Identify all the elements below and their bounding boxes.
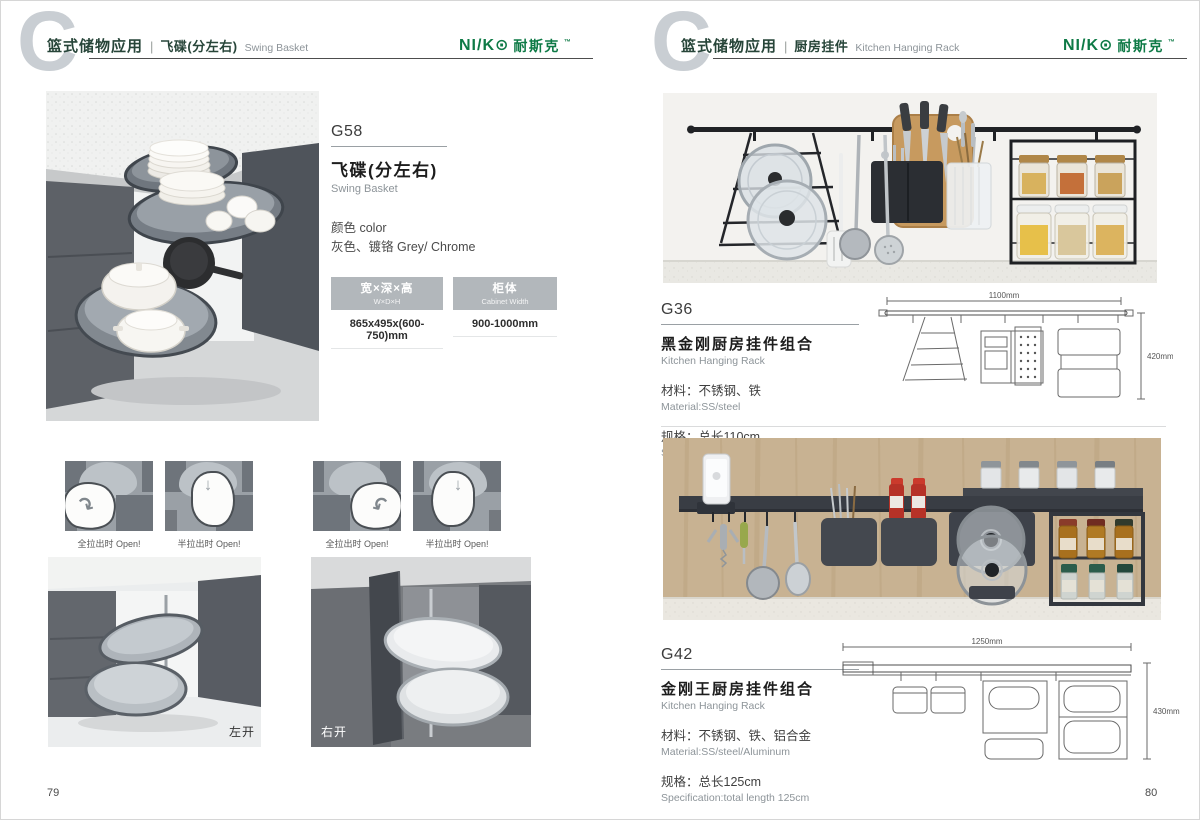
color-info: 颜色 color 灰色、镀铬 Grey/ Chrome [331, 219, 557, 257]
white-tray-lower [398, 669, 508, 725]
drawing-g42-dimensions: 1250mm 430mm [831, 631, 1181, 764]
product-name-en: Kitchen Hanging Rack [661, 355, 901, 367]
header-rule [713, 58, 1187, 59]
diagram-caption: 半拉出时 Open! [413, 537, 501, 550]
jars-top [1019, 155, 1125, 197]
product-code: G42 [661, 646, 859, 670]
spec-header-cn: 宽×深×高 [331, 280, 443, 296]
diagram-half-pull: ↓ 半拉出时 Open! [165, 461, 253, 550]
brand-wordmark-cn: 耐斯克 [1117, 38, 1164, 54]
header-separator: | [150, 39, 153, 54]
header-category: 篮式储物应用 [681, 35, 777, 56]
page-header: 篮式储物应用 | 厨房挂件 Kitchen Hanging Rack [681, 35, 959, 56]
diagram-caption: 半拉出时 Open! [165, 537, 253, 550]
dimension-height-label: 430mm [1153, 707, 1180, 716]
page-number: 79 [47, 787, 59, 799]
brand-wordmark: NI/K⊙ [1063, 38, 1113, 54]
bottle-rack [1051, 514, 1143, 604]
product-info-g36: G36 黑金刚厨房挂件组合 Kitchen Hanging Rack 材料：不锈… [661, 301, 901, 459]
jars-bottom [1017, 205, 1127, 259]
drawn-two-tier-rack [1058, 329, 1120, 397]
mechanism-diagrams-right-open: ↷ 全拉出时 Open! ↓ 半拉出时 Open! [313, 461, 501, 550]
photo-swing-basket-right-open [311, 557, 531, 747]
page-number: 80 [1145, 787, 1157, 799]
spec-value: 865x495x(600-750)mm [331, 310, 443, 349]
drop-arrow-icon: ↓ [204, 475, 213, 495]
product-name-en: Swing Basket [331, 183, 557, 195]
drawn-bin-rack [1059, 681, 1127, 759]
dimension-height-label: 420mm [1147, 352, 1173, 361]
dish-stack [159, 171, 225, 205]
diagram-full-pull: ↷ 全拉出时 Open! [313, 461, 401, 550]
header-title-en: Kitchen Hanging Rack [855, 42, 959, 54]
drawing-g36-dimensions: 1100mm 420mm [873, 287, 1173, 409]
soup-pot [102, 263, 176, 310]
product-name-cn: 黑金刚厨房挂件组合 [661, 333, 901, 354]
spec-header-cn: 柜体 [453, 280, 557, 296]
spec-header-en: W×D×H [331, 297, 443, 306]
mechanism-diagrams-left-open: ↷ 全拉出时 Open! ↓ 半拉出时 Open! [65, 461, 253, 550]
spec-value: 900-1000mm [453, 310, 557, 337]
diagram-full-pull: ↷ 全拉出时 Open! [65, 461, 153, 550]
spec-column-dimensions: 宽×深×高 W×D×H 865x495x(600-750)mm [331, 277, 443, 349]
page-left: C 篮式储物应用 | 飞碟(分左右) Swing Basket NI/K⊙ 耐斯… [1, 1, 601, 820]
drawn-caddy [981, 327, 1043, 385]
section-divider [661, 426, 1166, 427]
brand-logo: NI/K⊙ 耐斯克 ™ [1063, 38, 1175, 54]
brand-wordmark-cn: 耐斯克 [513, 38, 560, 54]
spec-header-en: Cabinet Width [453, 297, 557, 306]
page-right: C 篮式储物应用 | 厨房挂件 Kitchen Hanging Rack NI/… [601, 1, 1200, 820]
gray-tray-lower [86, 663, 186, 715]
trademark-symbol: ™ [1168, 39, 1175, 46]
brand-wordmark: NI/K⊙ [459, 38, 509, 54]
header-category: 篮式储物应用 [47, 35, 143, 56]
product-code: G58 [331, 123, 447, 147]
spice-jars [1061, 564, 1133, 599]
material-en: Material:SS/steel [661, 401, 901, 413]
spec-table: 宽×深×高 W×D×H 865x495x(600-750)mm 柜体 Cabin… [331, 277, 557, 349]
photo-caption-left-open: 左开 [229, 723, 255, 740]
spec-en: Specification:total length 125cm [661, 792, 901, 804]
header-title-cn: 厨房挂件 [794, 36, 848, 55]
color-value: 灰色、镀铬 Grey/ Chrome [331, 238, 557, 257]
page-header: 篮式储物应用 | 飞碟(分左右) Swing Basket [47, 35, 308, 56]
header-title-cn: 飞碟(分左右) [160, 36, 237, 55]
photo-swing-basket-main [46, 91, 319, 421]
catalog-spread: C 篮式储物应用 | 飞碟(分左右) Swing Basket NI/K⊙ 耐斯… [0, 0, 1200, 820]
drawn-boxes [893, 687, 965, 713]
diagram-caption: 全拉出时 Open! [65, 537, 153, 550]
sauce-bottles [1059, 519, 1133, 558]
header-title-en: Swing Basket [245, 42, 309, 54]
trademark-symbol: ™ [564, 39, 571, 46]
photo-kitchen-rack-g36 [663, 93, 1157, 283]
material-cn: 材料：不锈钢、铁 [661, 380, 901, 399]
color-label: 颜色 color [331, 219, 557, 238]
spec-cn: 规格：总长125cm [661, 771, 901, 790]
product-info-g58: G58 飞碟(分左右) Swing Basket 颜色 color 灰色、镀铬 … [331, 123, 557, 349]
dimension-width-label: 1100mm [989, 291, 1020, 300]
photo-swing-basket-left-open [48, 557, 261, 747]
phone-holder [697, 454, 735, 514]
drawn-lid-rack [903, 317, 967, 381]
header-rule [89, 58, 593, 59]
photo-caption-right-open: 右开 [321, 723, 347, 740]
diagram-half-pull: ↓ 半拉出时 Open! [413, 461, 501, 550]
brand-logo: NI/K⊙ 耐斯克 ™ [459, 38, 571, 54]
spec-column-cabinet: 柜体 Cabinet Width 900-1000mm [453, 277, 557, 349]
product-name-cn: 飞碟(分左右) [331, 156, 557, 181]
dimension-width-label: 1250mm [971, 637, 1002, 646]
drawn-lid-unit [983, 681, 1047, 759]
photo-kitchen-rack-g42 [663, 438, 1161, 620]
drop-arrow-icon: ↓ [454, 475, 463, 495]
header-separator: | [784, 39, 787, 54]
diagram-caption: 全拉出时 Open! [313, 537, 401, 550]
product-code: G36 [661, 301, 859, 325]
